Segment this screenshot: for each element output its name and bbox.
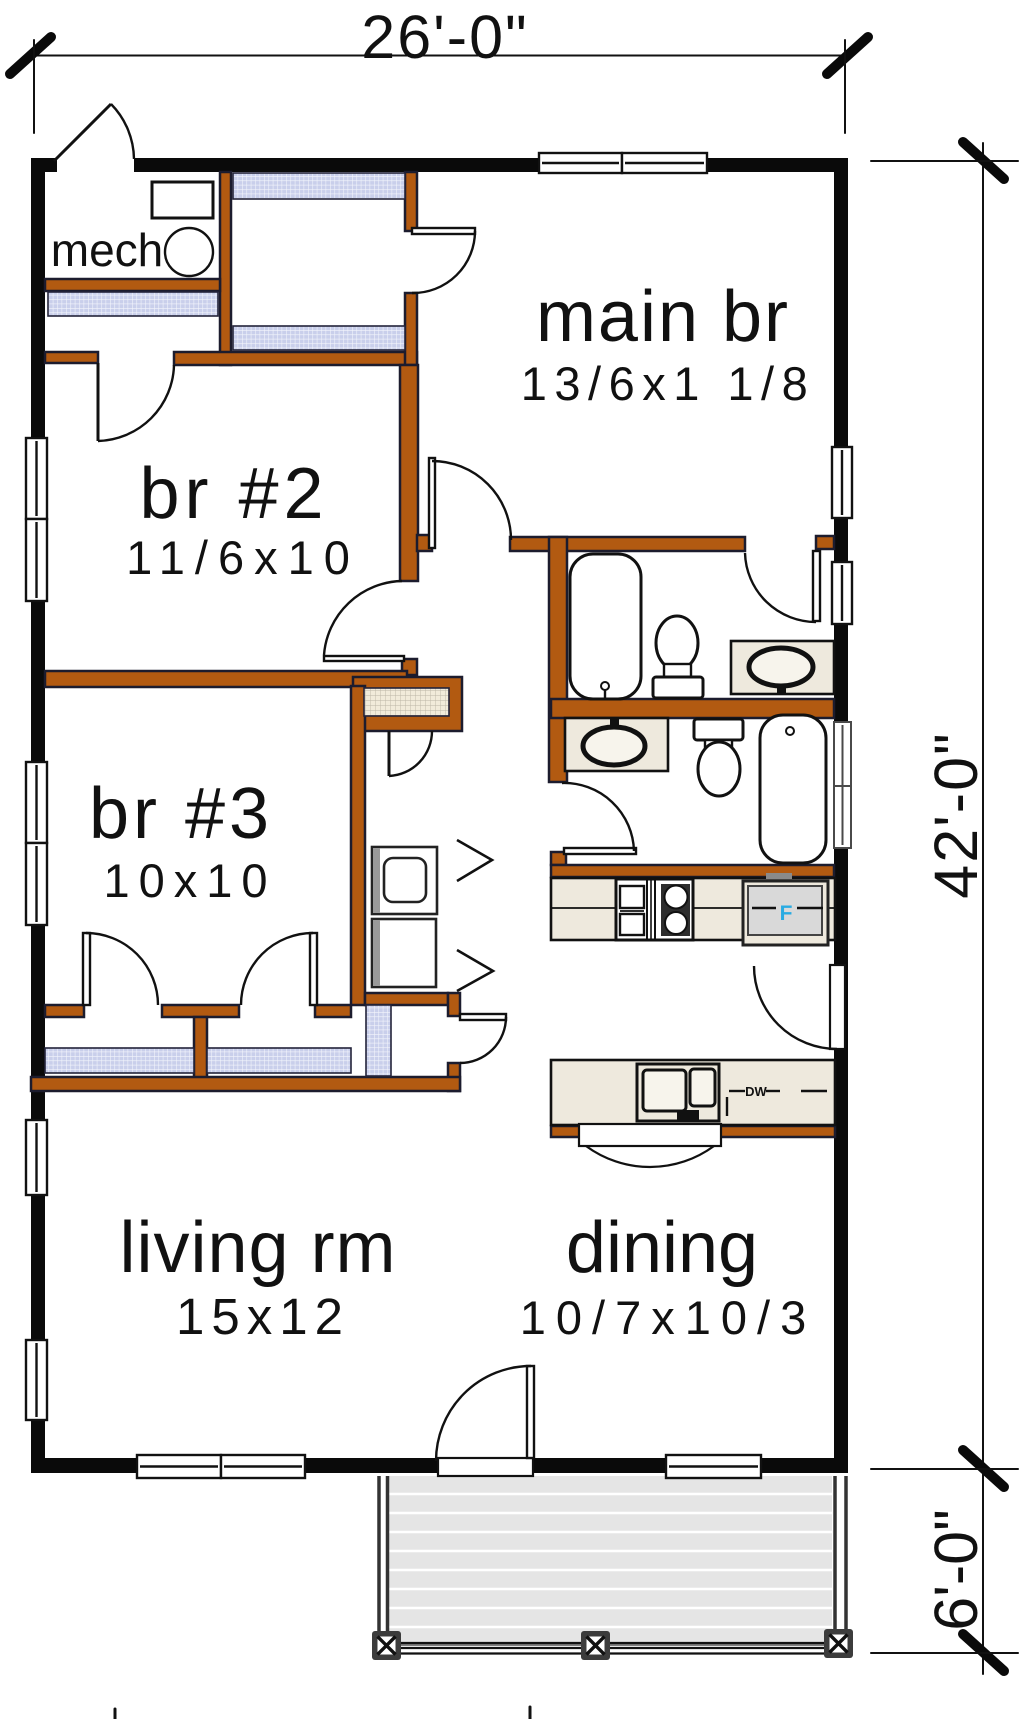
svg-text:br #2: br #2 bbox=[139, 454, 328, 534]
svg-text:11/6x10: 11/6x10 bbox=[126, 531, 360, 584]
svg-text:DW: DW bbox=[745, 1084, 767, 1099]
svg-text:10x10: 10x10 bbox=[103, 854, 276, 907]
svg-text:26'-0": 26'-0" bbox=[361, 3, 528, 71]
svg-text:main br: main br bbox=[536, 277, 790, 357]
svg-text:living rm: living rm bbox=[119, 1208, 396, 1288]
svg-text:10/7x10/3: 10/7x10/3 bbox=[520, 1291, 816, 1344]
svg-text:6'-0": 6'-0" bbox=[922, 1509, 990, 1630]
svg-text:F: F bbox=[780, 902, 793, 925]
svg-text:mech: mech bbox=[51, 224, 163, 276]
svg-text:15x12: 15x12 bbox=[176, 1288, 350, 1345]
svg-text:dining: dining bbox=[566, 1208, 758, 1288]
svg-text:br #3: br #3 bbox=[89, 774, 273, 854]
svg-text:13/6x1 1/8: 13/6x1 1/8 bbox=[521, 357, 816, 410]
svg-text:42'-0": 42'-0" bbox=[922, 731, 990, 898]
